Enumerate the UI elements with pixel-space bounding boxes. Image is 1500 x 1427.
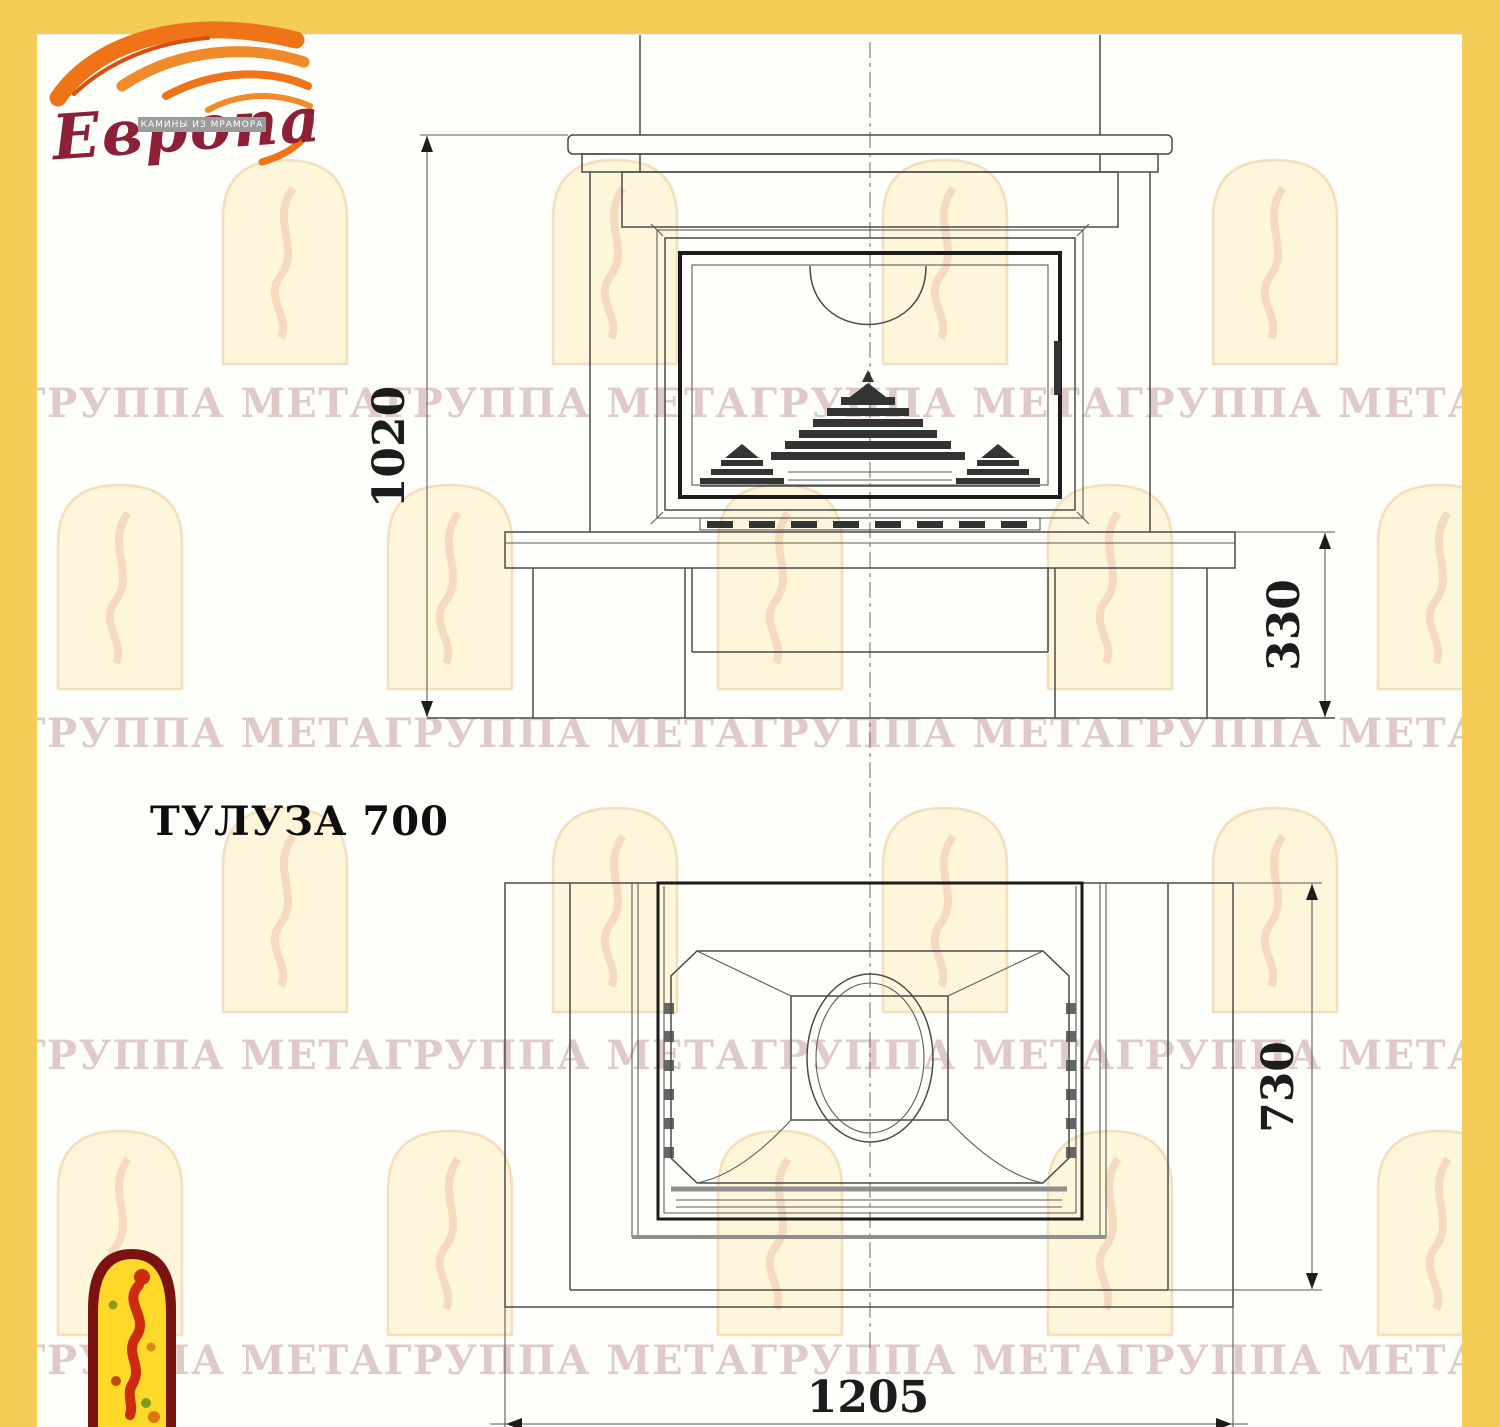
smoke-dome-arc: [810, 266, 926, 325]
dimension-front-height: 1020: [364, 136, 433, 717]
plan-extension-lines: [505, 883, 1322, 1427]
plan-firebox-interior: [671, 951, 1069, 1207]
frame-border-left: [0, 33, 37, 1427]
frame-border-right: [1462, 33, 1500, 1427]
plan-view: 730 1205: [490, 883, 1322, 1427]
center-pedestal-sides: [692, 568, 1048, 652]
dimension-label-1020: 1020: [364, 386, 415, 508]
door-handle: [1054, 341, 1061, 395]
dimension-label-330: 330: [1259, 579, 1310, 671]
europa-logo-tagline: КАМИНЫ ИЗ МРАМОРА: [138, 117, 266, 132]
plan-side-walls: [570, 883, 1168, 1290]
page-title: ТУЛУЗА 700: [150, 798, 449, 845]
dimension-label-730: 730: [1253, 1041, 1304, 1133]
dimension-width: 1205: [490, 1372, 1248, 1427]
plan-inner-walls: [632, 883, 1106, 1237]
dimension-depth: 730: [1253, 884, 1318, 1289]
fireplace-technical-drawing: 1020 330: [0, 0, 1500, 1427]
plan-outer-footprint: [505, 883, 1233, 1307]
dimension-label-1205: 1205: [807, 1372, 929, 1423]
dimension-base-height: 330: [1259, 533, 1331, 717]
front-view: 1020 330: [364, 35, 1335, 718]
meta-emblem: [82, 1243, 182, 1427]
